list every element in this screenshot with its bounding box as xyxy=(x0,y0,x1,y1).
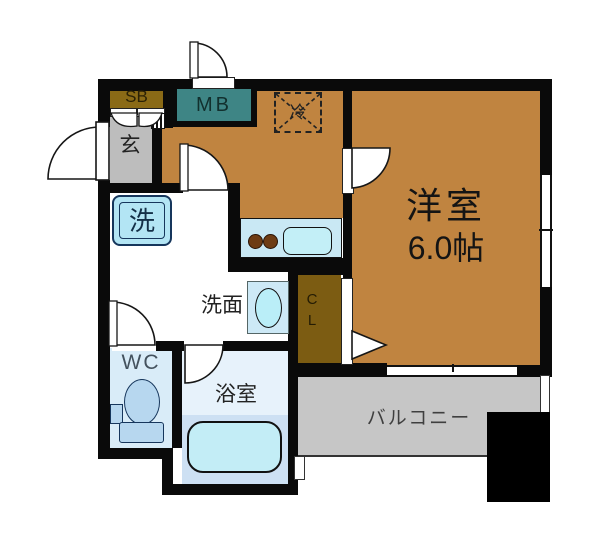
wall-wc-bath-divider xyxy=(172,348,182,448)
washing-machine-label: 洗 xyxy=(112,208,172,234)
closet-label-l: L xyxy=(294,310,330,331)
meter-box-door-sill xyxy=(192,77,235,89)
wc-door-arc xyxy=(112,302,155,345)
wall-western-left-a xyxy=(343,91,352,148)
genkan-step-hatch xyxy=(151,113,165,129)
stove-burner-right xyxy=(263,234,278,249)
wall-left-upper xyxy=(98,79,110,127)
kitchen-sink xyxy=(283,227,332,255)
shoe-box-label: SB xyxy=(110,88,163,105)
bathroom-label: 浴室 xyxy=(182,384,290,405)
window-balcony-tick xyxy=(452,364,454,372)
corridor-door-sill xyxy=(183,183,228,193)
western-room-size: 6.0帖 xyxy=(352,232,540,264)
balcony-left-post xyxy=(294,456,305,480)
wall-under-genkan xyxy=(98,183,183,193)
stove-burner-left xyxy=(248,234,263,249)
balcony-bottom-line xyxy=(298,455,488,457)
toilet-tank xyxy=(110,404,123,424)
genkan-label: 玄 xyxy=(108,135,152,156)
wall-wc-bottom xyxy=(98,448,172,459)
toilet-bowl xyxy=(124,379,160,425)
refrigerator-label: 冷 xyxy=(274,104,322,121)
wall-washroom-bottom-b xyxy=(223,341,290,351)
wc-door-sill xyxy=(112,341,156,351)
wall-top-right xyxy=(233,79,552,91)
toilet-base xyxy=(119,422,164,443)
western-room-label: 洋室 6.0帖 xyxy=(352,188,540,264)
bath-door-sill xyxy=(184,341,223,351)
wc-label: WC xyxy=(110,352,172,373)
window-right xyxy=(540,175,552,287)
wall-left-main xyxy=(98,180,110,459)
bathtub xyxy=(187,421,282,473)
meter-box-door-arc xyxy=(193,43,227,77)
western-room-name: 洋室 xyxy=(352,188,540,224)
wall-right-upper xyxy=(540,79,552,175)
meter-box-door-leaf xyxy=(190,42,198,78)
wall-genkan-bar xyxy=(152,127,162,183)
powder-room-label: 洗面 xyxy=(172,295,272,316)
wall-right-lower xyxy=(540,287,552,377)
wall-bottom-west-of-window xyxy=(288,363,387,377)
meter-box-label: MB xyxy=(177,95,251,115)
floor-plan: SB MB 冷 玄 洗 洗面 C L 洋室 6.0帖 WC 浴室 バルコニー xyxy=(0,0,600,541)
closet-label-c: C xyxy=(294,289,330,310)
wall-western-left-b xyxy=(343,188,352,278)
closet-label: C L xyxy=(294,289,330,331)
balcony-right-strip xyxy=(540,375,550,413)
wall-bath-bottom xyxy=(162,484,297,495)
wall-corridor-corner xyxy=(228,183,240,193)
wc-door-leaf xyxy=(109,301,117,346)
room-kitchen-floor-strip xyxy=(240,183,343,218)
entrance-door-arc xyxy=(48,127,100,179)
balcony-label: バルコニー xyxy=(298,409,540,428)
closet-door-strip xyxy=(341,278,353,365)
window-right-tick xyxy=(539,229,553,231)
shoe-box-door-center-tick xyxy=(136,108,138,115)
